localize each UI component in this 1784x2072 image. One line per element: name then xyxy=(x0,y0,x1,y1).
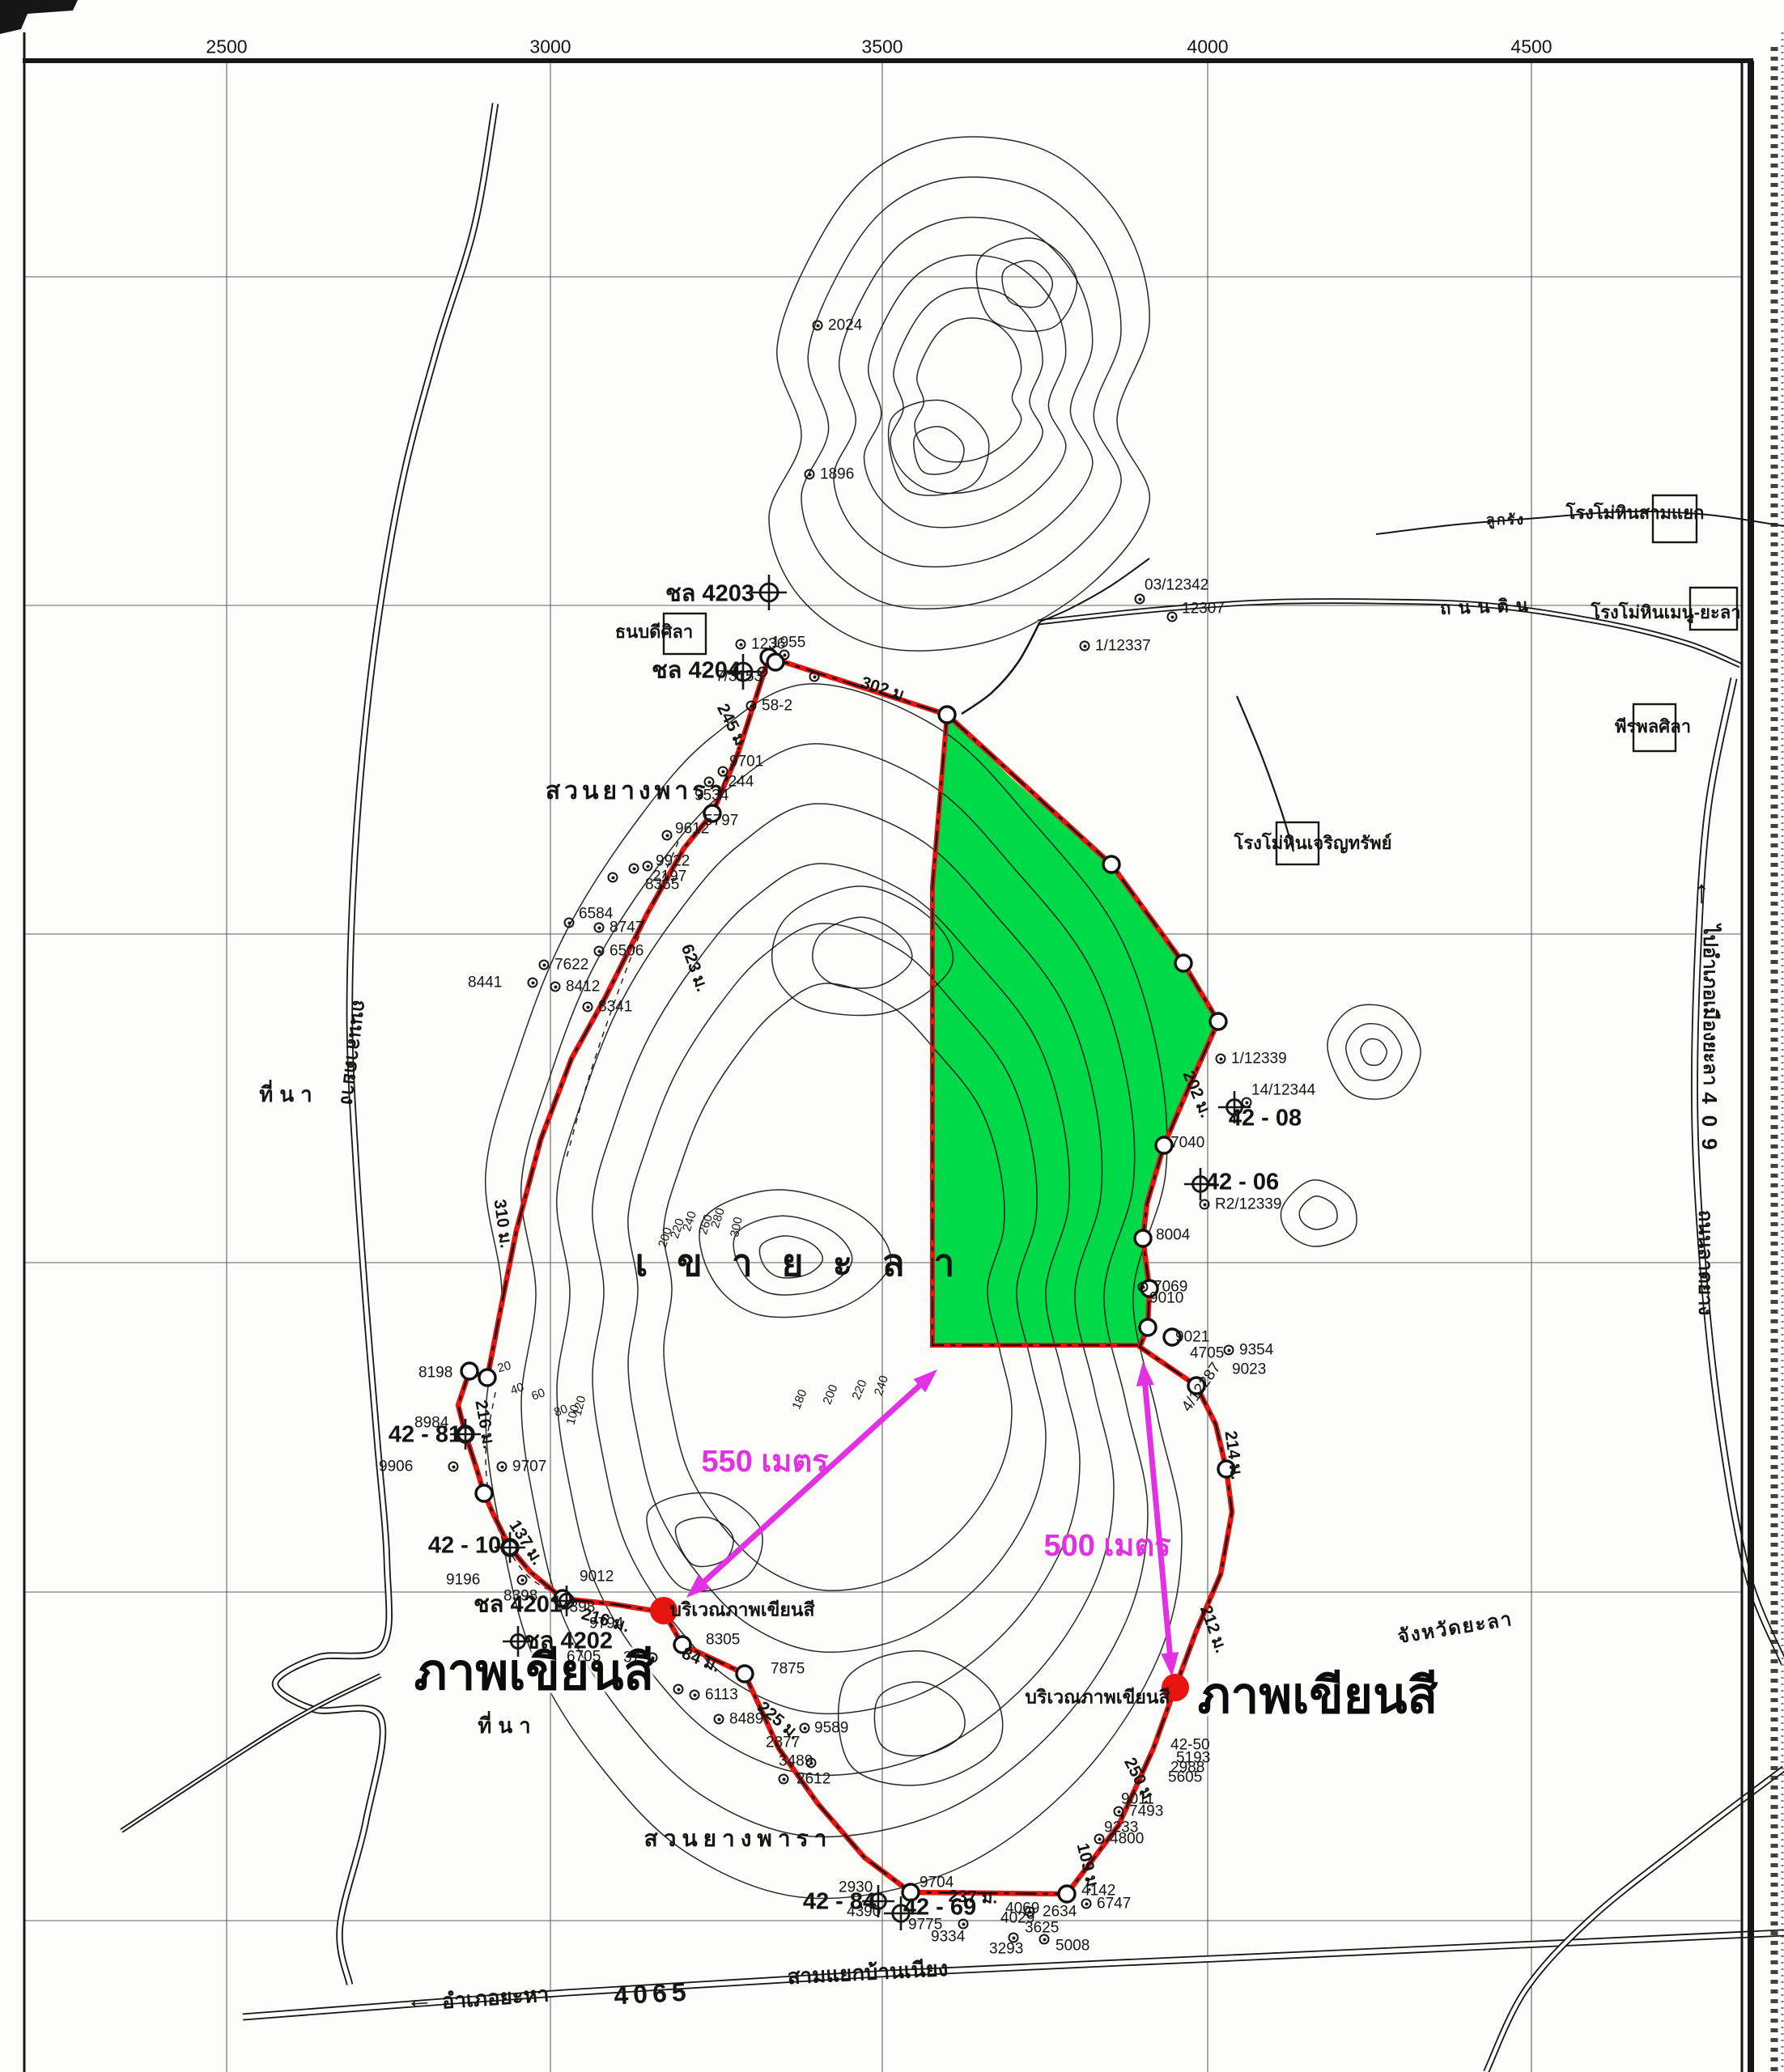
boundary-vertex-circle xyxy=(476,1485,492,1501)
spot-elevation-marker xyxy=(1200,1199,1210,1210)
spot-elevation-marker xyxy=(736,639,746,650)
spot-elevation-marker xyxy=(1138,1282,1149,1293)
spot-elevation-marker xyxy=(448,1462,459,1472)
spot-elevation-label: 3293 xyxy=(989,1942,1023,1957)
spot-elevation-marker xyxy=(1135,594,1145,605)
spot-elevation-label: 9707 xyxy=(512,1459,546,1475)
survey-station-label: 42 - 06 xyxy=(1206,1171,1279,1195)
spot-elevation-label: 12307 xyxy=(1182,601,1225,617)
grid-label: 3000 xyxy=(529,38,571,57)
spot-elevation-marker xyxy=(1081,1899,1092,1909)
scan-corner-artifact xyxy=(0,0,78,34)
spot-elevation-label: 5797 xyxy=(704,813,738,829)
measure-arrowhead xyxy=(1136,1361,1154,1386)
spot-elevation-label: 9196 xyxy=(446,1573,480,1588)
spot-elevation-label: 2024 xyxy=(828,318,862,333)
spot-elevation-label: 8004 xyxy=(1156,1228,1190,1243)
area-label: ลูกรัง xyxy=(1486,512,1525,527)
contour-line xyxy=(1002,261,1052,308)
spot-elevation-label: 8341 xyxy=(598,1000,632,1015)
area-label: ที่นา xyxy=(259,1084,319,1105)
spot-elevation-marker xyxy=(746,701,757,711)
map-canvas xyxy=(0,0,1784,2072)
spot-elevation-marker xyxy=(648,1653,658,1663)
spot-elevation-label: R2/12339 xyxy=(1215,1197,1281,1212)
spot-elevation-label: 9010 xyxy=(1149,1291,1183,1306)
survey-station-label: ชล 4203 xyxy=(665,583,754,606)
spot-elevation-label: 7493 xyxy=(1129,1804,1163,1819)
spot-elevation-label: 9023 xyxy=(1232,1362,1266,1378)
measure-distance-label: 550 เมตร xyxy=(701,1446,828,1477)
grid-label: 4500 xyxy=(1510,38,1552,57)
spot-elevation-marker xyxy=(608,873,618,883)
area-label: ที่นา xyxy=(478,1715,537,1736)
spot-elevation-label: 9701 xyxy=(729,754,763,770)
direction-arrow-west-icon: ← xyxy=(405,1985,434,2014)
spot-elevation-label: 8305 xyxy=(706,1633,740,1648)
spot-elevation-label: 8747 xyxy=(610,920,644,936)
spot-elevation-label: 8398 xyxy=(503,1589,537,1604)
spot-elevation-label: 03/12342 xyxy=(1145,578,1208,593)
contour-line xyxy=(914,427,964,474)
spot-elevation-marker xyxy=(779,1774,789,1785)
spot-elevation-label: 7040 xyxy=(1170,1136,1204,1151)
boundary-distance-label: 237 ม. xyxy=(948,1887,997,1906)
spot-elevation-label: 6113 xyxy=(705,1688,738,1703)
spot-elevation-marker xyxy=(662,830,673,841)
contour-line xyxy=(769,137,1149,651)
factory-label: โรงโม่หินเมนู-ยะลา xyxy=(1591,604,1740,622)
spot-elevation-label: 5605 xyxy=(1168,1770,1202,1785)
spot-elevation-marker xyxy=(1025,1907,1035,1917)
spot-elevation-marker xyxy=(1224,1345,1234,1356)
spot-elevation-marker xyxy=(805,469,815,480)
spot-elevation-label: 1955 xyxy=(771,635,805,651)
scanned-topographic-map: 25003000350040004500550 เมตร500 เมตรบริเ… xyxy=(0,0,1784,2072)
spot-elevation-marker xyxy=(1039,1934,1050,1945)
spot-elevation-marker xyxy=(1242,1098,1252,1108)
spot-elevation-label: 3625 xyxy=(1025,1921,1059,1936)
spot-elevation-marker xyxy=(564,918,575,928)
spot-elevation-marker xyxy=(714,1714,724,1725)
spot-elevation-label: 8984 xyxy=(414,1416,448,1431)
factory-label: โรงโม่หินเจริญทรัพย์ xyxy=(1234,834,1392,852)
spot-elevation-label: 8198 xyxy=(418,1365,452,1381)
spot-elevation-label: 4705 xyxy=(1190,1346,1224,1361)
painting-area-label: บริเวณภาพเขียนสี xyxy=(1025,1688,1170,1707)
spot-elevation-marker xyxy=(629,864,639,874)
spot-elevation-marker xyxy=(594,923,605,933)
contour-line xyxy=(801,177,1121,609)
spot-elevation-marker xyxy=(806,1758,817,1768)
measure-arrowhead xyxy=(1161,1652,1179,1677)
road-label-409: 409 xyxy=(1699,1092,1720,1161)
spot-elevation-marker xyxy=(1216,1054,1226,1064)
spot-elevation-marker xyxy=(809,672,820,682)
road-label-paved-east: ถนนลาดยาง xyxy=(1695,1210,1714,1315)
road-label-4065: 4065 xyxy=(614,1979,692,2009)
spot-elevation-label: 6506 xyxy=(610,944,644,959)
survey-station-label: 42 - 10 xyxy=(428,1535,501,1558)
spot-elevation-label: 37 xyxy=(623,1650,640,1666)
spot-elevation-marker xyxy=(550,982,561,992)
spot-elevation-marker xyxy=(1080,641,1090,652)
contour-line xyxy=(915,318,1022,462)
contour-line xyxy=(1361,1039,1387,1066)
spot-elevation-label: 8412 xyxy=(566,979,600,995)
spot-elevation-label: 6584 xyxy=(579,906,613,922)
spot-elevation-marker xyxy=(517,1575,528,1586)
spot-elevation-label: 9922 xyxy=(656,854,690,869)
boundary-vertex-circle xyxy=(1135,1230,1151,1246)
spot-elevation-label: 6705 xyxy=(567,1650,601,1665)
spot-elevation-label: 5008 xyxy=(1056,1938,1090,1954)
direction-arrow-north-icon: ↑ xyxy=(1693,876,1710,908)
contour-line xyxy=(976,238,1077,331)
boundary-vertex-circle xyxy=(939,707,955,723)
track-ne xyxy=(962,622,1040,714)
spot-elevation-marker xyxy=(673,1684,684,1695)
spot-elevation-label: 2612 xyxy=(796,1772,830,1787)
spot-elevation-label: 1/12339 xyxy=(1231,1051,1287,1067)
survey-station-label: 42 - 08 xyxy=(1229,1107,1302,1131)
spot-elevation-label: 6747 xyxy=(1097,1896,1131,1912)
boundary-vertex-circle xyxy=(1175,955,1191,971)
spot-elevation-marker xyxy=(497,1462,508,1472)
road-409-core xyxy=(1694,678,1784,1663)
boundary-vertex-circle xyxy=(1103,856,1119,873)
boundary-vertex-circle xyxy=(1156,1137,1172,1153)
factory-label: โรงโม่หินสามแยก xyxy=(1566,504,1705,522)
spot-elevation-marker xyxy=(1114,1807,1124,1817)
grid-label: 2500 xyxy=(206,38,247,57)
measure-distance-label: 500 เมตร xyxy=(1043,1531,1170,1561)
spot-elevation-label: 9612 xyxy=(675,822,709,837)
boundary-vertex-circle xyxy=(1140,1319,1156,1335)
painting-title: ภาพเขียนสี xyxy=(1198,1671,1438,1722)
contour-line xyxy=(864,255,1066,528)
spot-elevation-label: 9589 xyxy=(814,1721,848,1736)
spot-elevation-marker xyxy=(1167,612,1178,622)
spot-elevation-marker xyxy=(813,321,823,331)
contour-line xyxy=(874,1682,965,1756)
contour-line xyxy=(772,886,954,1016)
spot-elevation-marker xyxy=(528,978,538,988)
spot-elevation-marker xyxy=(1094,1834,1105,1845)
road-label-to-mueang-yala: ไปอำเภอเมืองยะลา xyxy=(1700,925,1719,1086)
spot-elevation-label: 8365 xyxy=(645,877,679,893)
spot-elevation-marker xyxy=(594,946,605,957)
factory-label: พีรพลศิลา xyxy=(1615,718,1691,736)
painting-area-label: บริเวณภาพเขียนสี xyxy=(669,1601,814,1620)
measure-arrow xyxy=(697,1379,926,1588)
spot-elevation-label: 14/12344 xyxy=(1251,1083,1315,1098)
spot-elevation-label: 4390 xyxy=(847,1904,881,1920)
spot-elevation-label: 8441 xyxy=(468,975,502,991)
contour-line xyxy=(1281,1180,1357,1246)
road-west-core xyxy=(275,104,495,1985)
spot-elevation-marker xyxy=(539,960,550,970)
spot-elevation-label: 4800 xyxy=(1110,1832,1144,1847)
spot-elevation-label: 9334 xyxy=(931,1930,965,1945)
spot-elevation-marker xyxy=(643,861,653,872)
contour-line xyxy=(813,917,912,988)
grid-label: 4000 xyxy=(1187,38,1228,57)
spot-elevation-label: 9354 xyxy=(1239,1343,1273,1358)
contour-line xyxy=(834,218,1093,567)
boundary-vertex-circle xyxy=(1059,1886,1075,1902)
spot-elevation-label: 2634 xyxy=(1043,1904,1077,1920)
spot-elevation-marker xyxy=(583,1002,593,1013)
spot-elevation-label: 1896 xyxy=(820,467,854,482)
contour-line xyxy=(1327,1004,1421,1099)
area-label: สวนยางพารา xyxy=(644,1828,833,1850)
factory-label: ธนบดีศิลา xyxy=(615,623,694,641)
contour-line xyxy=(1346,1024,1402,1081)
contour-line xyxy=(1299,1196,1337,1229)
spot-elevation-label: 7875 xyxy=(771,1662,805,1677)
spot-elevation-label: 7622 xyxy=(554,957,588,973)
stream-a xyxy=(1237,696,1293,851)
contour-elevation-label: 20 xyxy=(496,1360,512,1375)
spot-elevation-marker xyxy=(758,667,768,677)
spot-elevation-label: 9021 xyxy=(1175,1330,1209,1345)
painting-title: ภาพเขียนสี xyxy=(414,1648,655,1698)
contour-line xyxy=(839,1651,1003,1785)
spot-elevation-label: 2930 xyxy=(839,1880,873,1896)
contour-line xyxy=(889,400,989,495)
grid-label: 3500 xyxy=(861,38,903,57)
spot-elevation-label: 9906 xyxy=(379,1459,413,1475)
spot-elevation-label: 1/12337 xyxy=(1095,639,1151,654)
road-west xyxy=(275,104,495,1985)
fence-sw xyxy=(121,1675,380,1831)
boundary-vertex-circle xyxy=(737,1666,753,1682)
spot-elevation-label: 7/3153 xyxy=(716,669,762,685)
spot-elevation-label: 9012 xyxy=(580,1569,614,1585)
boundary-vertex-circle xyxy=(461,1363,478,1379)
spot-elevation-marker xyxy=(690,1690,700,1700)
spot-elevation-label: 58-2 xyxy=(762,698,792,714)
area-label: สวนยางพารา xyxy=(546,779,727,804)
area-label: ถนนดิน xyxy=(1440,597,1536,618)
area-label: เขายะลา xyxy=(635,1244,984,1281)
boundary-vertex-circle xyxy=(479,1369,495,1386)
boundary-vertex-circle xyxy=(1210,1013,1226,1030)
